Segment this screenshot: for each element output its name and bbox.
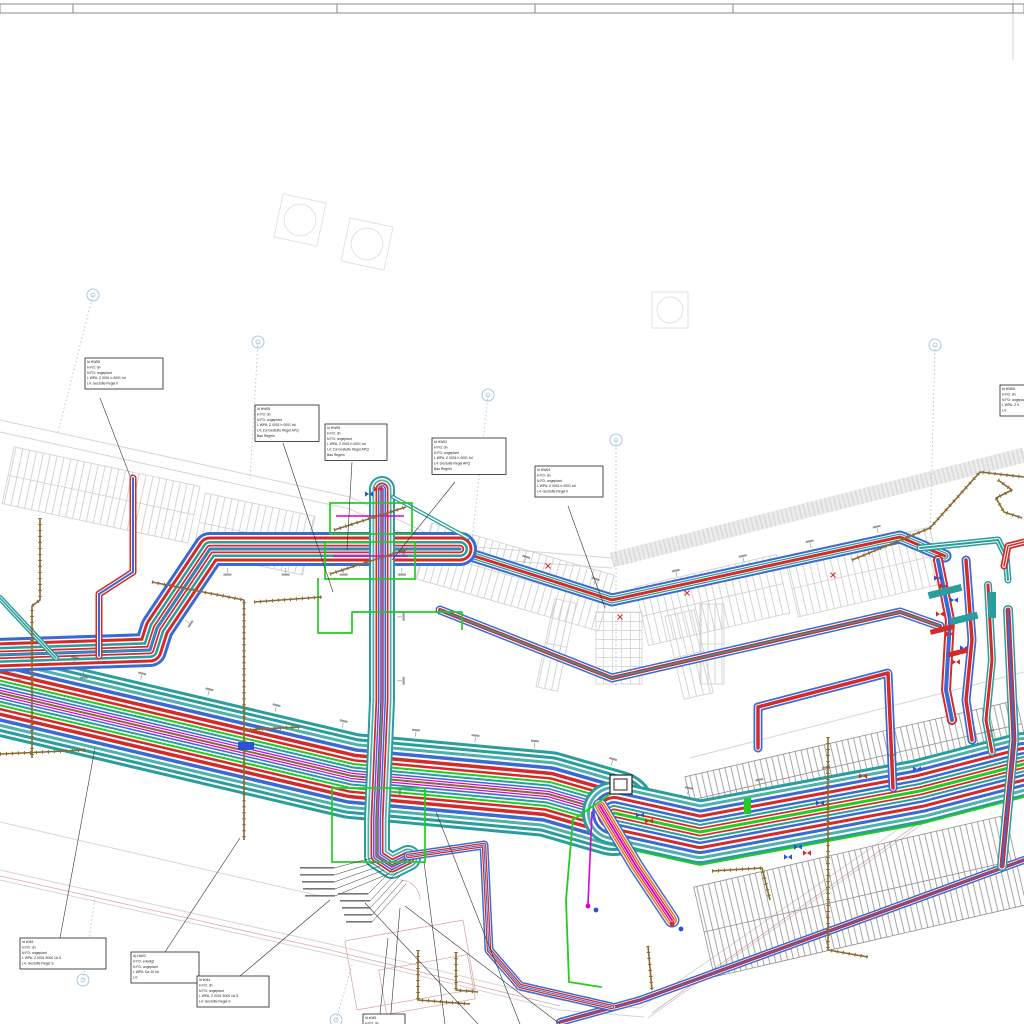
annotation-callout: A) HA02H FD: erledigtN FD: ungeplantL WP… — [131, 952, 199, 983]
building-outlines — [0, 0, 1024, 1018]
micro-label — [344, 914, 372, 916]
annotation-callout: Id HW05H FD: dnN FD: ungeplantL WPA: Z 0… — [85, 358, 163, 389]
valve-icon — [936, 611, 944, 616]
micro-label — [346, 921, 372, 923]
drawing-sheet: Id HW05H FD: dnN FD: ungeplantL WPA: Z 0… — [0, 0, 1024, 1024]
utility-route — [408, 845, 612, 1007]
roof-opening-symbol — [652, 292, 688, 328]
annotation-callout: Id e044H FD: dnN FD: ungeplantL WPA: Z 0… — [197, 976, 269, 1007]
micro-label — [338, 893, 368, 895]
micro-label — [342, 907, 370, 909]
valve-icon — [784, 854, 792, 859]
utility-route — [0, 692, 614, 813]
annotation-callout: Id HW06H FD: dnN FD: ungeplantL WPA: Z 0… — [1000, 385, 1024, 416]
micro-label — [340, 900, 370, 902]
micro-label — [302, 881, 334, 883]
title-strip — [0, 4, 1024, 13]
leader-lines — [300, 812, 560, 1024]
valve-icon — [952, 659, 960, 664]
utility-route — [1004, 542, 1024, 566]
pipe-end-marker — [594, 908, 599, 913]
roof-opening-symbol — [341, 218, 393, 270]
annotation-callout: Id HW04H FD: dnN FD: ungeplantL WPA: Z 0… — [535, 466, 603, 497]
hatched-block — [2, 447, 200, 543]
site-plan-canvas: Id HW05H FD: dnN FD: ungeplantL WPA: Z 0… — [0, 0, 1024, 1024]
pipe-end-marker — [586, 904, 591, 909]
pipe-end-marker — [679, 927, 684, 932]
manhole-symbol — [610, 775, 632, 794]
valve-icon — [803, 850, 811, 855]
shaft-marker — [238, 742, 254, 750]
pipe-fitting-symbol — [988, 592, 996, 618]
hatched-block — [700, 604, 724, 684]
annotation-callout: Id HW02H FD: dnN FD: ungeplantL WPA: Z 0… — [432, 438, 506, 474]
micro-label — [305, 895, 335, 897]
micro-label — [300, 874, 334, 876]
annotation-callout: Id e046H FD: dnN FD: ungeplantL WPA: Z 0… — [20, 938, 106, 969]
micro-label — [303, 888, 335, 890]
pipe-end-marker — [670, 922, 675, 927]
micro-label — [300, 867, 334, 869]
annotation-callout: Id HW05H FD: dnN FD: ungeplantL WPA: Z 0… — [325, 424, 387, 460]
annotation-callout: Id HW06H FD: dnN FD: ungeplantL WPA: Z 0… — [255, 405, 319, 441]
pipe-fitting-symbol — [744, 798, 751, 814]
annotation-callout: Id e045H FD: dn — [363, 1014, 405, 1024]
roof-opening-symbol — [274, 194, 326, 246]
